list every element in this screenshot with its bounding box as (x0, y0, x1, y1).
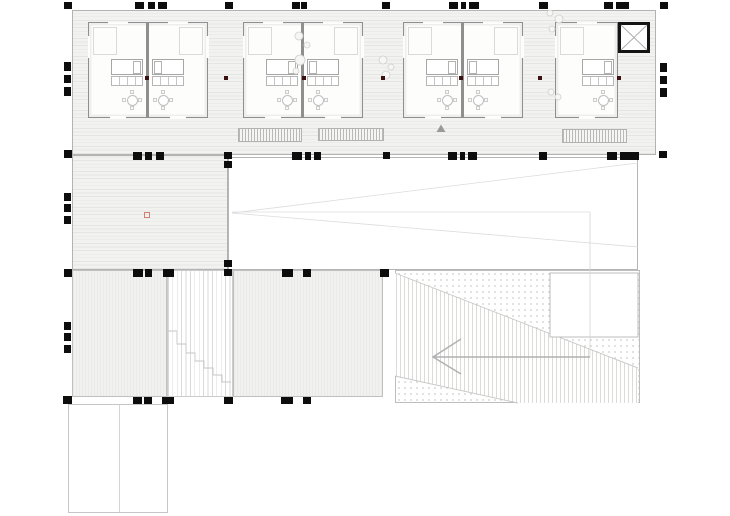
column-marker (145, 269, 152, 277)
cabin-3-room-2-window-gap (483, 22, 503, 25)
cabin-1-divider-wall (146, 22, 150, 118)
structural-dot (224, 76, 228, 80)
column-marker (292, 152, 302, 160)
column-marker (460, 152, 465, 160)
cabin-1-room-2-chair (169, 98, 174, 103)
cabin-3-room-1-table (442, 95, 453, 106)
column-marker (382, 2, 390, 9)
cabin-3-room-1-chair (445, 90, 450, 95)
column-marker (64, 75, 71, 83)
cabin-4-room-1-loft (560, 27, 584, 55)
column-marker (224, 269, 232, 276)
cabin-1-room-2-closet (152, 76, 184, 86)
cabin-3-room-1-loft (408, 27, 432, 55)
cabin-2-room-2-closet (307, 76, 339, 86)
column-marker (64, 216, 71, 224)
cabin-1-room-2-pillow (154, 61, 162, 74)
red-reference-square (144, 212, 150, 218)
cabin-1-room-1-chair (130, 90, 135, 95)
cabin-4-room-1-table (598, 95, 609, 106)
cabin-4-room-1-pillow (604, 61, 612, 74)
annex-divider (119, 405, 120, 512)
column-marker (469, 2, 479, 9)
column-marker (292, 2, 300, 9)
column-marker (604, 2, 613, 9)
cabin-3-room-1-window-gap (423, 22, 443, 25)
terrace-left (72, 270, 167, 397)
cabin-1-room-1-side-window-gap (88, 36, 91, 58)
column-marker (539, 2, 548, 9)
column-marker (449, 2, 458, 9)
cabin-2-room-2-loft (334, 27, 358, 55)
column-marker (314, 152, 321, 160)
column-marker (383, 152, 390, 159)
column-marker (660, 88, 667, 97)
annex (68, 404, 168, 513)
cabin-3-room-1-chair (437, 98, 442, 103)
cabin-2-room-2-door-gap (325, 116, 341, 119)
structural-dot (617, 76, 621, 80)
structural-dot (538, 76, 542, 80)
column-marker (305, 152, 311, 160)
column-marker (301, 2, 307, 9)
cabin-3-room-1-door-gap (425, 116, 441, 119)
column-marker (158, 2, 167, 9)
column-marker (224, 397, 233, 404)
column-marker (380, 269, 389, 277)
cabin-3-room-1-side-window-gap (403, 36, 406, 58)
cabin-1-room-1-door-gap (110, 116, 126, 119)
cabin-2-room-1-pillow (288, 61, 296, 74)
column-marker (64, 345, 71, 353)
cabin-2-room-2-chair (324, 98, 329, 103)
floor-plan-canvas (0, 0, 730, 516)
column-marker (133, 397, 142, 404)
cabin-1-room-2-table (158, 95, 169, 106)
cabin-3-room-1-closet (426, 76, 458, 86)
grating-strip (318, 128, 384, 141)
cabin-1-room-1-chair (138, 98, 143, 103)
column-marker (64, 204, 71, 212)
cabin-2-room-1-table (282, 95, 293, 106)
cabin-2-room-2-chair (308, 98, 313, 103)
cabin-3-room-2-chair (484, 98, 489, 103)
cabin-1-room-2-chair (161, 106, 166, 111)
cabin-1-room-2-side-window-gap (206, 36, 209, 58)
cabin-3-room-1-chair (453, 98, 458, 103)
cabin-3-room-2-closet (467, 76, 499, 86)
column-marker (303, 269, 311, 277)
cabin-3-room-1-pillow (448, 61, 456, 74)
cabin-2-room-1-chair (293, 98, 298, 103)
column-marker (64, 87, 71, 96)
column-marker (539, 152, 547, 160)
column-marker (620, 152, 639, 160)
cabin-4-room-1-window-gap (577, 22, 597, 25)
cabin-4-room-1-closet (582, 76, 614, 86)
cabin-1-room-1-window-gap (108, 22, 128, 25)
structural-dot (302, 76, 306, 80)
grating-strip (238, 128, 302, 142)
column-marker (282, 269, 293, 277)
column-marker (607, 152, 617, 160)
column-marker (660, 63, 667, 72)
cabin-3-room-2-loft (494, 27, 518, 55)
cabin-4-room-1-chair (609, 98, 614, 103)
cabin-1-room-2-door-gap (170, 116, 186, 119)
cabin-3-room-2-chair (476, 106, 481, 111)
cabin-3-room-2-chair (468, 98, 473, 103)
column-marker (145, 152, 152, 160)
roof-void (228, 157, 638, 270)
cabin-1-room-1-table (127, 95, 138, 106)
cabin-2-room-2-chair (316, 106, 321, 111)
cabin-2-room-2-side-window-gap (361, 36, 364, 58)
column-marker (64, 193, 71, 201)
cabin-2-room-1-chair (285, 90, 290, 95)
cabin-2-room-1-door-gap (265, 116, 281, 119)
cabin-1-room-2-chair (153, 98, 158, 103)
cabin-1-room-1-chair (122, 98, 127, 103)
column-marker (64, 322, 71, 330)
column-marker (64, 333, 71, 341)
column-marker (64, 269, 72, 277)
structural-dot (459, 76, 463, 80)
cabin-2-room-1-chair (277, 98, 282, 103)
cabin-3-divider-wall (461, 22, 465, 118)
column-marker (63, 396, 72, 404)
structural-dot (381, 76, 385, 80)
column-marker (64, 62, 71, 71)
cabin-2-room-1-closet (266, 76, 298, 86)
deck-left-column (72, 155, 228, 270)
cabin-3-room-1-chair (445, 106, 450, 111)
column-marker (163, 269, 174, 277)
cabin-3-room-2-table (473, 95, 484, 106)
column-marker (133, 269, 143, 277)
cabin-4-room-1-door-gap (579, 116, 595, 119)
column-marker (461, 2, 466, 9)
column-marker (224, 260, 232, 267)
terrace-mid (233, 270, 383, 397)
column-marker (64, 2, 72, 9)
column-marker (224, 152, 232, 159)
cabin-2-room-1-chair (285, 106, 290, 111)
elevator-shaft (618, 22, 650, 53)
column-marker (135, 2, 144, 9)
cabin-3-room-2-chair (476, 90, 481, 95)
cabin-4-room-1-chair (601, 106, 606, 111)
cabin-4-room-1-side-window-gap (555, 36, 558, 58)
cabin-1-room-1-closet (111, 76, 143, 86)
cabin-1-room-2-loft (179, 27, 203, 55)
column-marker (162, 397, 174, 404)
stair-strip (167, 270, 233, 397)
cabin-2-room-1-loft (248, 27, 272, 55)
cabin-2-room-2-window-gap (323, 22, 343, 25)
cabin-2-room-2-table (313, 95, 324, 106)
column-marker (64, 150, 72, 158)
structural-dot (145, 76, 149, 80)
cabin-1-room-1-chair (130, 106, 135, 111)
column-marker (281, 397, 293, 404)
column-marker (468, 152, 477, 160)
column-marker (659, 151, 667, 158)
cabin-1-room-1-pillow (133, 61, 141, 74)
cabin-1-room-2-window-gap (168, 22, 188, 25)
column-marker (144, 397, 152, 404)
cabin-2-room-2-chair (316, 90, 321, 95)
cabin-3-room-2-pillow (469, 61, 477, 74)
cabin-3-room-2-side-window-gap (521, 36, 524, 58)
column-marker (156, 152, 164, 160)
cabin-1-room-1-loft (93, 27, 117, 55)
column-marker (448, 152, 457, 160)
cabin-2-room-2-pillow (309, 61, 317, 74)
column-marker (303, 397, 311, 404)
cabin-1-room-2-chair (161, 90, 166, 95)
column-marker (148, 2, 155, 9)
cabin-4-room-1-chair (593, 98, 598, 103)
cabin-2-room-1-side-window-gap (243, 36, 246, 58)
column-marker (616, 2, 629, 9)
column-marker (224, 161, 232, 168)
column-marker (133, 152, 142, 160)
cabin-3-room-2-door-gap (485, 116, 501, 119)
cabin-4-room-1-chair (601, 90, 606, 95)
cabin-2-divider-wall (301, 22, 305, 118)
column-marker (660, 2, 668, 9)
cabin-2-room-1-window-gap (263, 22, 283, 25)
ramp-area (395, 270, 640, 403)
column-marker (225, 2, 233, 9)
column-marker (660, 76, 667, 84)
grating-strip (562, 129, 627, 143)
